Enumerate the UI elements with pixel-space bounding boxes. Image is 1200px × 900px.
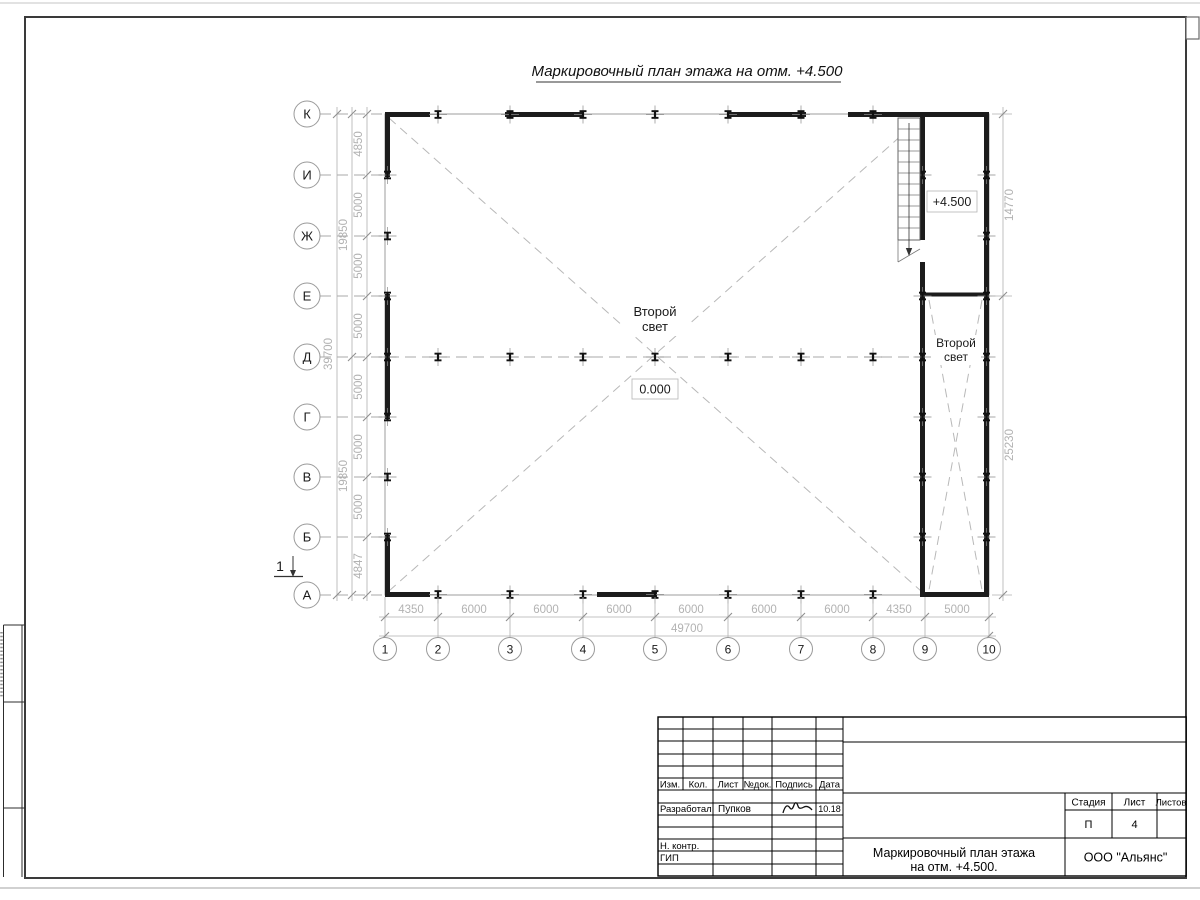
col-header-izm: Изм. [660,780,680,791]
axis-label: 7 [798,643,805,657]
dim-text: 5000 [353,253,365,279]
frame-corner-notch [1186,17,1199,39]
second-light-center-line1: Второй [634,304,677,319]
axis-label: 10 [982,643,996,657]
col-header-data: Дата [819,780,841,791]
col-header-podpis: Подпись [775,780,813,791]
doc-title-line1: Маркировочный план этажа [873,846,1035,860]
dim-text: 4847 [353,553,365,579]
axis-label: К [303,107,311,122]
dim-text: 5000 [944,604,970,616]
row-label-gip: ГИП [660,853,679,864]
dim-text: 6000 [824,604,850,616]
dim-text: 5000 [353,313,365,339]
dim-text: 5000 [353,434,365,460]
doc-title-line2: на отм. +4.500. [910,860,997,874]
sheet-label: Лист [1124,798,1146,809]
dim-text: 19850 [338,460,350,492]
axis-label: 2 [435,643,442,657]
axis-label: И [302,168,311,183]
axis-label: В [303,470,312,485]
dim-text: 6000 [678,604,704,616]
second-light-right-line1: Второй [936,336,976,350]
axis-label: 5 [652,643,659,657]
dim-text: 19850 [338,219,350,251]
dim-text: 14770 [1004,189,1016,221]
dim-text: 39700 [323,338,335,370]
axis-label: 1 [382,643,389,657]
dim-text: 6000 [606,604,632,616]
axis-label: Ж [301,229,313,244]
dim-text: 6000 [751,604,777,616]
stage-label: Стадия [1071,798,1105,809]
dim-text: 5000 [353,494,365,520]
dim-text: 49700 [671,623,703,635]
axis-label: 3 [507,643,514,657]
col-header-ndok: №док. [744,780,772,791]
axis-label: А [303,588,312,603]
dim-text: 5000 [353,374,365,400]
dim-text: 4850 [353,131,365,157]
date-value: 10.18 [818,804,841,814]
dim-text: 4350 [886,604,912,616]
dim-text: 6000 [461,604,487,616]
drawing-sheet: Маркировочный план этажа на отм. +4.500 [0,0,1200,900]
col-header-kol: Кол. [689,780,708,791]
row-label-razrabotal: Разработал [660,804,712,815]
axis-label: 6 [725,643,732,657]
titleblock: Изм. Кол. Лист №док. Подпись Дата Разраб… [658,717,1186,876]
second-light-right-line2: свет [944,350,969,364]
level-plus-label: +4.500 [933,195,972,209]
dim-text: 4350 [398,604,424,616]
axis-label: Е [303,289,312,304]
col-header-list: Лист [718,780,739,791]
axis-label: 8 [870,643,877,657]
sheet-title: Маркировочный план этажа на отм. +4.500 [532,63,844,80]
surname: Пупков [718,804,751,815]
axis-label: Г [303,410,310,425]
axis-label: Д [303,350,312,365]
sheet-value: 4 [1131,819,1137,831]
dim-text: 6000 [533,604,559,616]
axis-label: 4 [580,643,587,657]
sheets-label: Листов [1156,798,1187,809]
axis-label: Б [303,530,312,545]
axis-label: 9 [922,643,929,657]
level-zero-label: 0.000 [639,383,670,397]
staircase [898,118,920,262]
dim-text: 5000 [353,192,365,218]
company-name: ООО "Альянс" [1084,851,1168,865]
drawing-canvas: Маркировочный план этажа на отм. +4.500 [0,0,1200,900]
row-label-nkontr: Н. контр. [660,841,699,852]
dim-text: 25230 [1004,429,1016,461]
second-light-center-line2: свет [642,319,668,334]
section-number: 1 [276,558,284,574]
sheet-title-group: Маркировочный план этажа на отм. +4.500 [532,63,844,82]
stage-value: П [1085,819,1093,831]
